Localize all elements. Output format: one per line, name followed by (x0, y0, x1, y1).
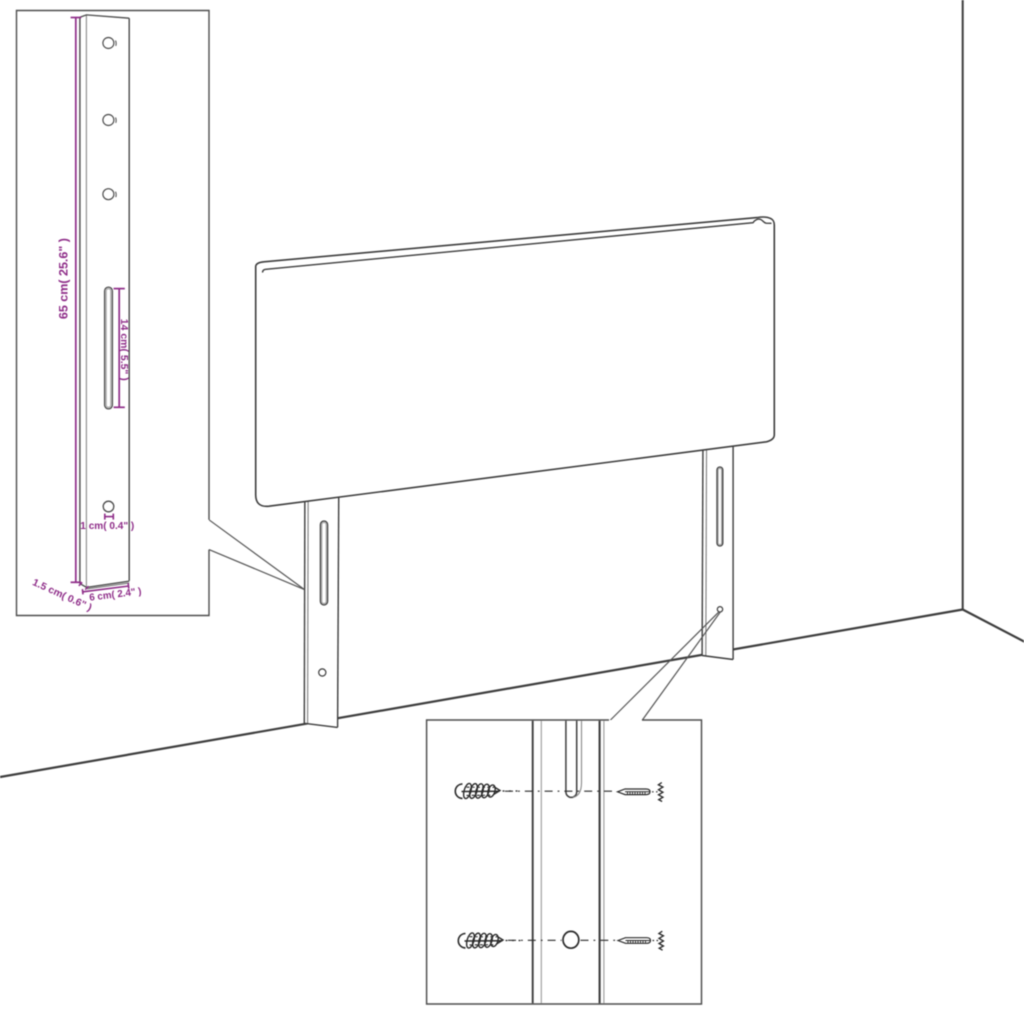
svg-text:14 cm( 5.5" ): 14 cm( 5.5" ) (118, 319, 129, 381)
svg-text:1 cm( 0.4" ): 1 cm( 0.4" ) (80, 520, 134, 532)
svg-text:65 cm( 25.6" ): 65 cm( 25.6" ) (56, 238, 70, 319)
